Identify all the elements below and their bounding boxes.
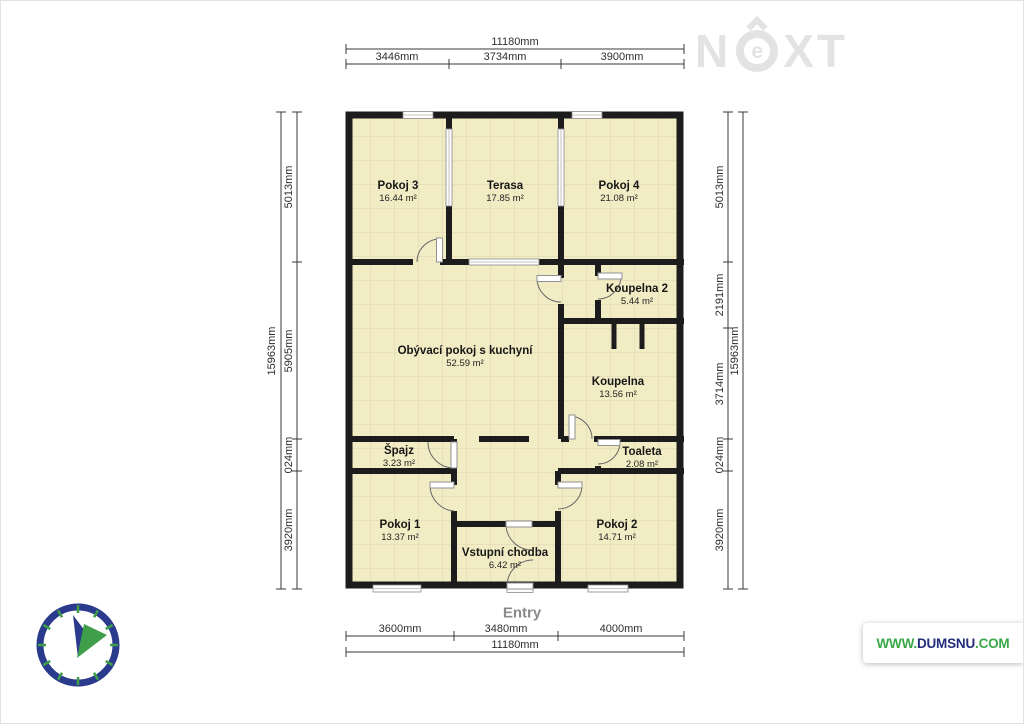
room-area: 5.44 m²	[606, 296, 668, 307]
room-area: 16.44 m²	[378, 193, 419, 204]
dim-left-seg-3: 024mm	[283, 437, 295, 474]
room-label-vstupni-chodba: Vstupní chodba 6.42 m²	[462, 547, 548, 571]
room-name: Terasa	[486, 180, 524, 193]
room-name: Pokoj 4	[599, 180, 640, 193]
dim-top-total: 11180mm	[491, 36, 538, 48]
dim-bottom-seg-1: 3600mm	[379, 623, 422, 635]
room-area: 21.08 m²	[599, 193, 640, 204]
room-area: 14.71 m²	[597, 532, 638, 543]
room-label-koupelna-2: Koupelna 2 5.44 m²	[606, 283, 668, 307]
room-label-spajz: Špajz 3.23 m²	[383, 445, 415, 469]
dim-bottom-seg-3: 4000mm	[600, 623, 643, 635]
dim-left-seg-4: 3920mm	[283, 509, 295, 552]
room-label-toaleta: Toaleta 2.08 m²	[622, 446, 661, 470]
website-www: WWW.	[877, 636, 917, 651]
room-name: Pokoj 2	[597, 519, 638, 532]
room-name: Pokoj 3	[378, 180, 419, 193]
room-area: 52.59 m²	[398, 358, 533, 369]
website-badge: WWW.DUMSNU.COM	[863, 623, 1023, 663]
room-area: 13.37 m²	[380, 532, 421, 543]
dim-top-seg-1: 3446mm	[376, 51, 419, 63]
dim-left-seg-2: 5905mm	[283, 330, 295, 373]
website-domain: DUMSNU	[917, 636, 975, 651]
dim-right-total: 15963mm	[729, 327, 741, 376]
entry-label: Entry	[503, 605, 541, 622]
dim-left-seg-1: 5013mm	[283, 166, 295, 209]
room-area: 6.42 m²	[462, 560, 548, 571]
dim-right-seg-3: 3714mm	[714, 363, 726, 406]
room-label-koupelna: Koupelna 13.56 m²	[592, 376, 644, 400]
dim-left-total: 15963mm	[266, 327, 278, 376]
room-label-pokoj-4: Pokoj 4 21.08 m²	[599, 180, 640, 204]
room-name: Obývací pokoj s kuchyní	[398, 345, 533, 358]
room-label-pokoj-3: Pokoj 3 16.44 m²	[378, 180, 419, 204]
room-area: 17.85 m²	[486, 193, 524, 204]
room-name: Pokoj 1	[380, 519, 421, 532]
compass-logo	[34, 601, 122, 689]
room-area: 13.56 m²	[592, 389, 644, 400]
website-tld: .COM	[975, 636, 1009, 651]
room-name: Vstupní chodba	[462, 547, 548, 560]
room-name: Špajz	[383, 445, 415, 458]
dim-bottom-seg-2: 3480mm	[485, 623, 528, 635]
dim-top-seg-2: 3734mm	[484, 51, 527, 63]
room-area: 2.08 m²	[622, 459, 661, 470]
dim-right-seg-5: 3920mm	[714, 509, 726, 552]
room-label-pokoj-2: Pokoj 2 14.71 m²	[597, 519, 638, 543]
room-label-pokoj-1: Pokoj 1 13.37 m²	[380, 519, 421, 543]
dim-top-seg-3: 3900mm	[601, 51, 644, 63]
room-name: Toaleta	[622, 446, 661, 459]
dim-right-seg-4: 024mm	[714, 437, 726, 474]
room-area: 3.23 m²	[383, 458, 415, 469]
room-name: Koupelna	[592, 376, 644, 389]
room-name: Koupelna 2	[606, 283, 668, 296]
room-label-obyvaci-pokoj: Obývací pokoj s kuchyní 52.59 m²	[398, 345, 533, 369]
room-label-terasa: Terasa 17.85 m²	[486, 180, 524, 204]
dim-right-seg-2: 2191mm	[714, 274, 726, 317]
dim-bottom-total: 11180mm	[491, 639, 538, 651]
dim-right-seg-1: 5013mm	[714, 166, 726, 209]
floorplan-page: N e XT	[0, 0, 1024, 724]
